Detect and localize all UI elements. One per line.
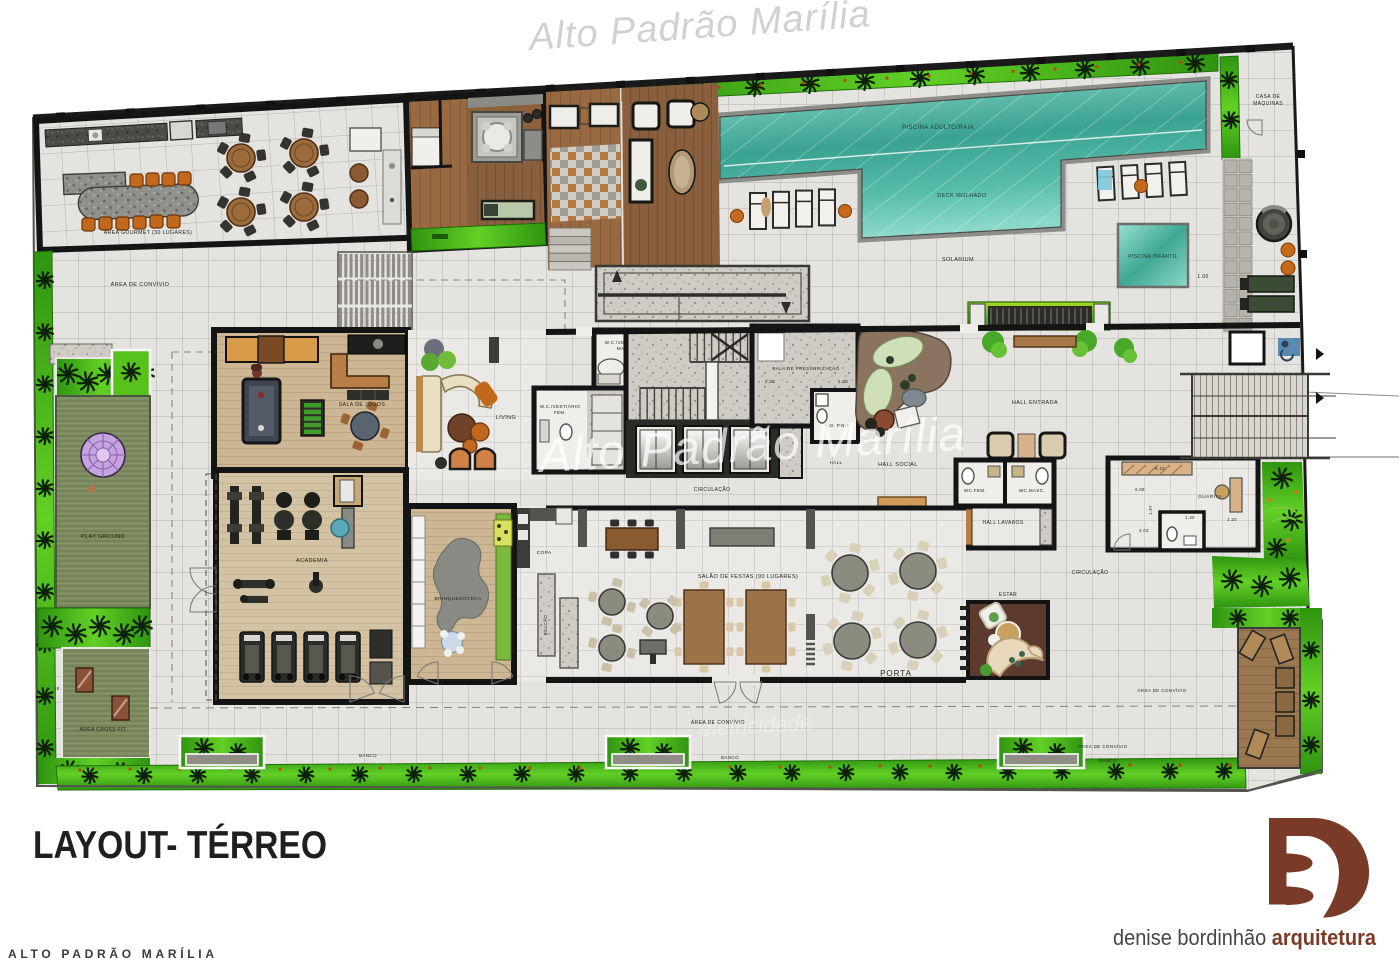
svg-text:ACADEMIA: ACADEMIA [296,558,328,564]
svg-text:BANCO: BANCO [721,755,739,760]
svg-text:PLAY GROUND: PLAY GROUND [81,534,125,540]
svg-text:LIVING: LIVING [496,415,516,421]
svg-text:WC.FEM.: WC.FEM. [964,488,986,493]
svg-text:HALL LAVABOS: HALL LAVABOS [982,520,1023,526]
svg-text:1.38: 1.38 [838,379,848,384]
svg-text:WC.MASC.: WC.MASC. [1019,488,1045,493]
svg-text:BANCO: BANCO [1099,758,1117,763]
svg-text:ÁREA GOURMET (30 LUGARES): ÁREA GOURMET (30 LUGARES) [104,229,193,236]
svg-text:SALÃO DE FESTAS (90 LUGARES): SALÃO DE FESTAS (90 LUGARES) [698,573,798,580]
svg-text:BRINQUEDOTECA: BRINQUEDOTECA [434,596,481,602]
svg-text:6.08: 6.08 [1135,487,1145,492]
svg-text:2.25: 2.25 [765,379,775,384]
svg-text:SALA DE PRESSURIZAÇÃO: SALA DE PRESSURIZAÇÃO [773,365,840,371]
svg-text:PISCINA INFANTIL: PISCINA INFANTIL [1128,254,1177,260]
svg-text:PORTA: PORTA [880,669,912,678]
svg-text:DECK MOLHADO: DECK MOLHADO [937,193,987,199]
svg-text:SOLARIUM: SOLARIUM [942,257,974,263]
svg-text:ESTAR: ESTAR [999,592,1017,598]
svg-text:ÁREA DE CONVÍVIO: ÁREA DE CONVÍVIO [1078,743,1127,749]
svg-text:ÁREA DE CONVÍVIO: ÁREA DE CONVÍVIO [111,281,170,288]
svg-text:PISCINA ADULTO/RAIA: PISCINA ADULTO/RAIA [902,125,974,131]
svg-text:HALL ENTRADA: HALL ENTRADA [1012,400,1058,406]
svg-text:MÁQUINAS: MÁQUINAS [1253,100,1283,107]
svg-text:1.30: 1.30 [1185,515,1195,520]
svg-text:2.03: 2.03 [1139,528,1149,533]
svg-text:COPA: COPA [537,550,552,556]
svg-text:CIRCULAÇÃO: CIRCULAÇÃO [1072,569,1109,576]
svg-text:FEM.: FEM. [554,410,566,415]
svg-text:ÁREA DE CONVÍVIO: ÁREA DE CONVÍVIO [1137,687,1186,693]
svg-text:1.00: 1.00 [1197,274,1208,280]
svg-text:8.10: 8.10 [1155,466,1165,471]
svg-text:2.20: 2.20 [1227,517,1237,522]
svg-text:W.C./VESTIÁRIO: W.C./VESTIÁRIO [540,403,581,409]
svg-text:SALA DE JOGOS: SALA DE JOGOS [339,402,386,408]
svg-text:CASA DE: CASA DE [1256,94,1281,100]
svg-text:BALCÃO: BALCÃO [542,615,548,636]
svg-text:LAYOUT- TÉRREO: LAYOUT- TÉRREO [33,823,327,867]
svg-text:denise bordinhão arquitetura: denise bordinhão arquitetura [1113,925,1376,950]
svg-text:GUARITA: GUARITA [1198,494,1222,500]
svg-text:ÁREA CROSS FIT: ÁREA CROSS FIT [80,726,127,733]
svg-text:BANCO: BANCO [359,753,377,758]
svg-text:1.97: 1.97 [1148,505,1153,515]
svg-text:CIRCULAÇÃO: CIRCULAÇÃO [694,486,731,493]
